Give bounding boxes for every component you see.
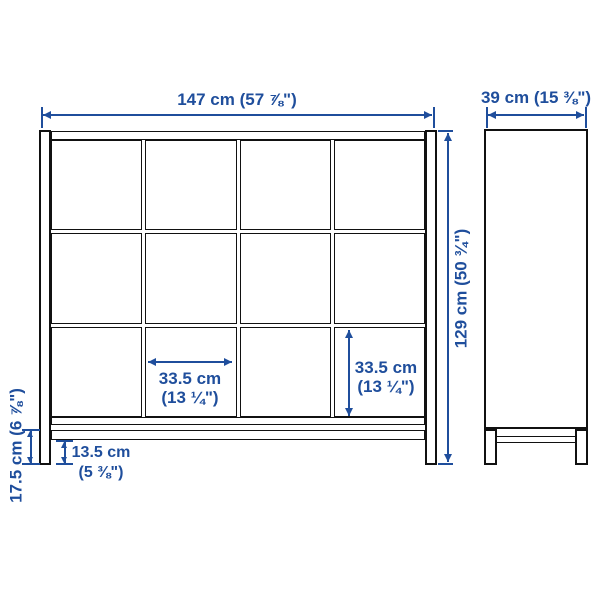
shelf-cell — [145, 140, 236, 230]
arrowhead-right-icon — [424, 111, 432, 119]
shelf-cell — [240, 140, 331, 230]
front-left-leg — [39, 130, 51, 465]
total-height-label: 129 cm (50 ¾") — [452, 229, 471, 349]
arrowhead-up-icon — [444, 133, 452, 141]
base-height-label: 17.5 cm (6 ⅞") — [7, 381, 26, 511]
clearance-label-cm: 13.5 cm — [71, 444, 131, 461]
arrowhead-right-icon — [224, 358, 232, 366]
cell-width-label-in: (13 ¼") — [140, 388, 240, 407]
shelf-cell — [240, 233, 331, 323]
arrowhead-up-icon — [345, 330, 353, 338]
arrowhead-left-icon — [488, 111, 496, 119]
shelf-cell — [334, 233, 425, 323]
cell-width-label-cm: 33.5 cm — [140, 369, 240, 388]
front-bottom-panel — [51, 417, 425, 425]
clearance-label-in: (5 ⅜") — [71, 464, 131, 481]
arrowhead-down-icon — [444, 454, 452, 462]
shelf-cell — [51, 327, 142, 417]
arrowhead-left-icon — [148, 358, 156, 366]
shelf-cell — [145, 233, 236, 323]
front-right-leg — [425, 130, 437, 465]
shelf-cell — [334, 140, 425, 230]
dimension-line — [488, 114, 584, 116]
shelf-cell — [51, 140, 142, 230]
shelf-cell — [51, 233, 142, 323]
shelf-cell — [240, 327, 331, 417]
arrowhead-down-icon — [27, 457, 33, 463]
extension-tick — [438, 463, 453, 465]
arrowhead-down-icon — [345, 408, 353, 416]
front-top-panel — [51, 131, 425, 140]
front-width-label: 147 cm (57 ⅞") — [127, 90, 347, 109]
cell-height-label-in: (13 ¼") — [336, 377, 436, 396]
side-front-leg — [484, 429, 497, 465]
side-depth-label: 39 cm (15 ⅜") — [446, 88, 600, 107]
dimension-line — [43, 114, 432, 116]
side-back-leg — [575, 429, 588, 465]
arrowhead-left-icon — [43, 111, 51, 119]
dimension-line — [447, 133, 449, 462]
front-underframe-rail — [51, 430, 425, 440]
arrowhead-down-icon — [61, 457, 67, 463]
extension-tick — [433, 107, 435, 128]
dimension-drawing: 147 cm (57 ⅞") 39 cm (15 ⅜") 129 cm (50 … — [0, 0, 600, 600]
extension-tick — [585, 107, 587, 128]
arrowhead-up-icon — [61, 442, 67, 448]
arrowhead-right-icon — [576, 111, 584, 119]
cell-height-label-cm: 33.5 cm — [336, 358, 436, 377]
side-underframe-rail — [496, 436, 576, 443]
side-body — [484, 129, 588, 429]
dimension-line — [148, 361, 232, 363]
arrowhead-up-icon — [27, 431, 33, 437]
extension-tick — [438, 130, 453, 132]
